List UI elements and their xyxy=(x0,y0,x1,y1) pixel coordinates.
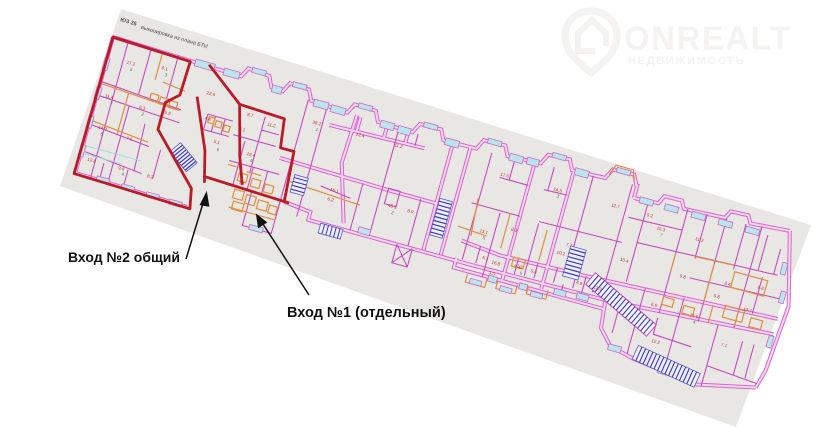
svg-text:Вход №1 (отдельный): Вход №1 (отдельный) xyxy=(287,305,446,321)
svg-text:Вход №2 общий: Вход №2 общий xyxy=(68,249,180,265)
svg-text:НЕДВИЖИМОСТЬ: НЕДВИЖИМОСТЬ xyxy=(628,55,745,67)
svg-text:ONREALT: ONREALT xyxy=(624,20,792,57)
